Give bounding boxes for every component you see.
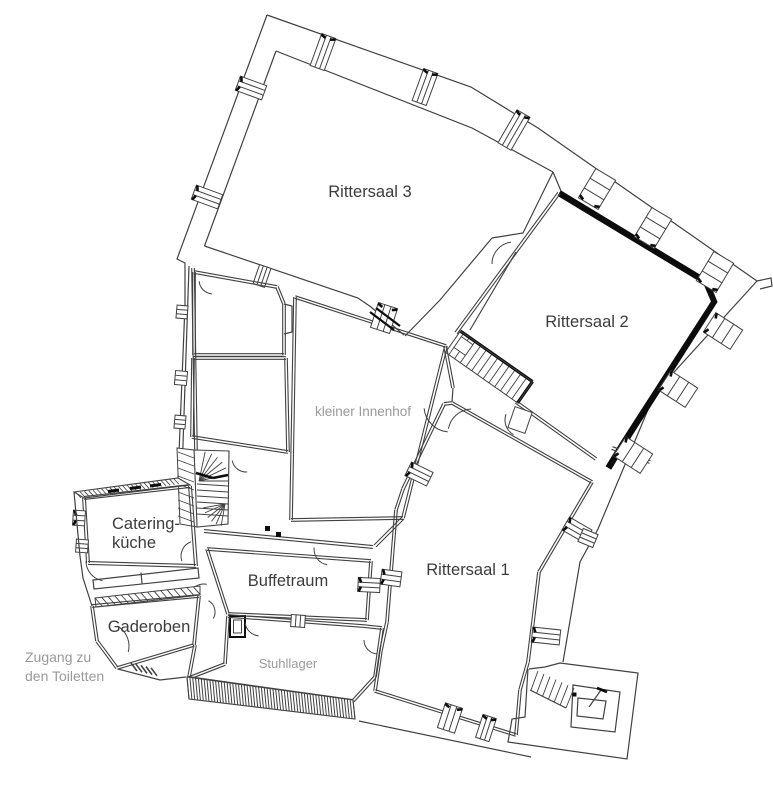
svg-text:Rittersaal 2: Rittersaal 2 [545,313,628,331]
svg-text:Rittersaal 1: Rittersaal 1 [426,561,509,579]
svg-text:den Toiletten: den Toiletten [25,668,104,684]
svg-text:Stuhllager: Stuhllager [259,656,318,671]
svg-text:küche: küche [112,534,156,552]
svg-text:Zugang zu: Zugang zu [25,649,91,665]
svg-text:Gaderoben: Gaderoben [108,618,191,636]
svg-text:Rittersaal 3: Rittersaal 3 [328,183,411,201]
svg-text:kleiner Innenhof: kleiner Innenhof [315,404,411,419]
svg-text:Catering-: Catering- [112,515,180,533]
svg-text:Buffetraum: Buffetraum [248,572,328,590]
